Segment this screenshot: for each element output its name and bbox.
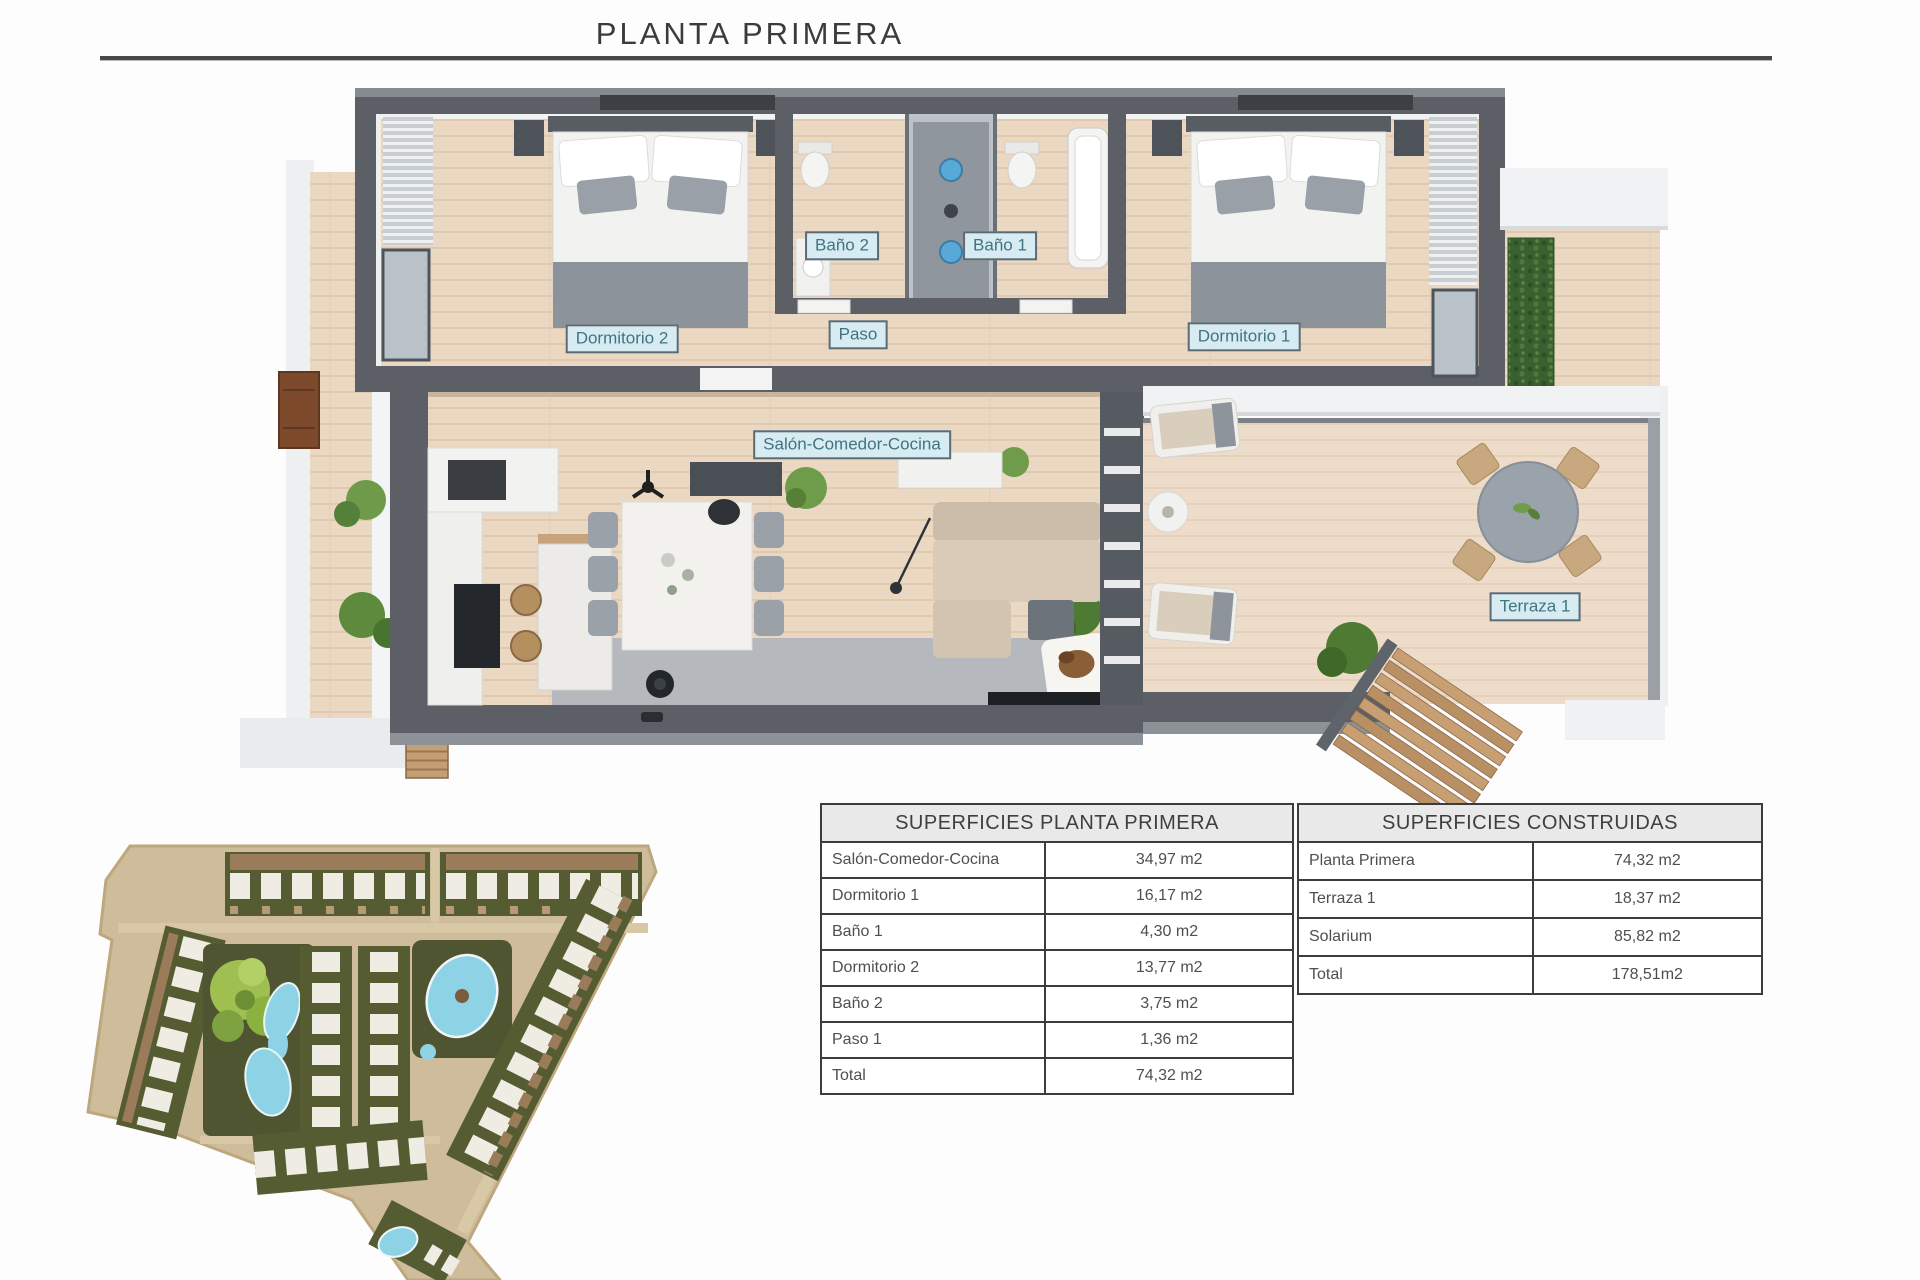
dining-set	[588, 502, 784, 650]
row-label: Total	[1298, 956, 1533, 994]
table-title: SUPERFICIES PLANTA PRIMERA	[820, 803, 1294, 843]
table-row: Salón-Comedor-Cocina 34,97 m2	[821, 842, 1293, 878]
room-label-salon: Salón-Comedor-Cocina	[753, 430, 951, 459]
room-label-dormitorio1: Dormitorio 1	[1188, 322, 1301, 351]
row-label: Salón-Comedor-Cocina	[821, 842, 1045, 878]
row-value: 85,82 m2	[1533, 918, 1762, 956]
table-row: Dormitorio 2 13,77 m2	[821, 950, 1293, 986]
table-row: Total 178,51m2	[1298, 956, 1762, 994]
site-masterplan	[88, 846, 656, 1280]
row-value: 74,32 m2	[1533, 842, 1762, 880]
shower-column	[905, 114, 997, 306]
row-label: Baño 1	[821, 914, 1045, 950]
row-value: 178,51m2	[1533, 956, 1762, 994]
table-row: Dormitorio 1 16,17 m2	[821, 878, 1293, 914]
table-row: Total 74,32 m2	[821, 1058, 1293, 1094]
paso-corridor	[775, 298, 1126, 314]
superficies-planta-primera-table: SUPERFICIES PLANTA PRIMERA Salón-Comedor…	[820, 803, 1294, 1095]
row-label: Dormitorio 1	[821, 878, 1045, 914]
row-value: 13,77 m2	[1045, 950, 1293, 986]
row-value: 34,97 m2	[1045, 842, 1293, 878]
table-row: Solarium 85,82 m2	[1298, 918, 1762, 956]
row-value: 4,30 m2	[1045, 914, 1293, 950]
room-label-terraza: Terraza 1	[1490, 592, 1581, 621]
room-label-paso: Paso	[829, 320, 888, 349]
row-label: Paso 1	[821, 1022, 1045, 1058]
row-value: 16,17 m2	[1045, 878, 1293, 914]
glass-door-wall	[1100, 392, 1144, 705]
row-value: 18,37 m2	[1533, 880, 1762, 918]
table-row: Paso 1 1,36 m2	[821, 1022, 1293, 1058]
room-label-dormitorio2: Dormitorio 2	[566, 324, 679, 353]
table-row: Baño 1 4,30 m2	[821, 914, 1293, 950]
table-row: Planta Primera 74,32 m2	[1298, 842, 1762, 880]
table-row: Baño 2 3,75 m2	[821, 986, 1293, 1022]
row-label: Dormitorio 2	[821, 950, 1045, 986]
row-value: 1,36 m2	[1045, 1022, 1293, 1058]
row-label: Planta Primera	[1298, 842, 1533, 880]
room-label-bano2: Baño 2	[805, 231, 879, 260]
room-label-bano1: Baño 1	[963, 231, 1037, 260]
row-value: 3,75 m2	[1045, 986, 1293, 1022]
row-value: 74,32 m2	[1045, 1058, 1293, 1094]
table-row: Terraza 1 18,37 m2	[1298, 880, 1762, 918]
superficies-construidas-table: SUPERFICIES CONSTRUIDAS Planta Primera 7…	[1297, 803, 1763, 995]
row-label: Terraza 1	[1298, 880, 1533, 918]
row-label: Solarium	[1298, 918, 1533, 956]
table-title: SUPERFICIES CONSTRUIDAS	[1297, 803, 1763, 843]
row-label: Baño 2	[821, 986, 1045, 1022]
row-label: Total	[821, 1058, 1045, 1094]
